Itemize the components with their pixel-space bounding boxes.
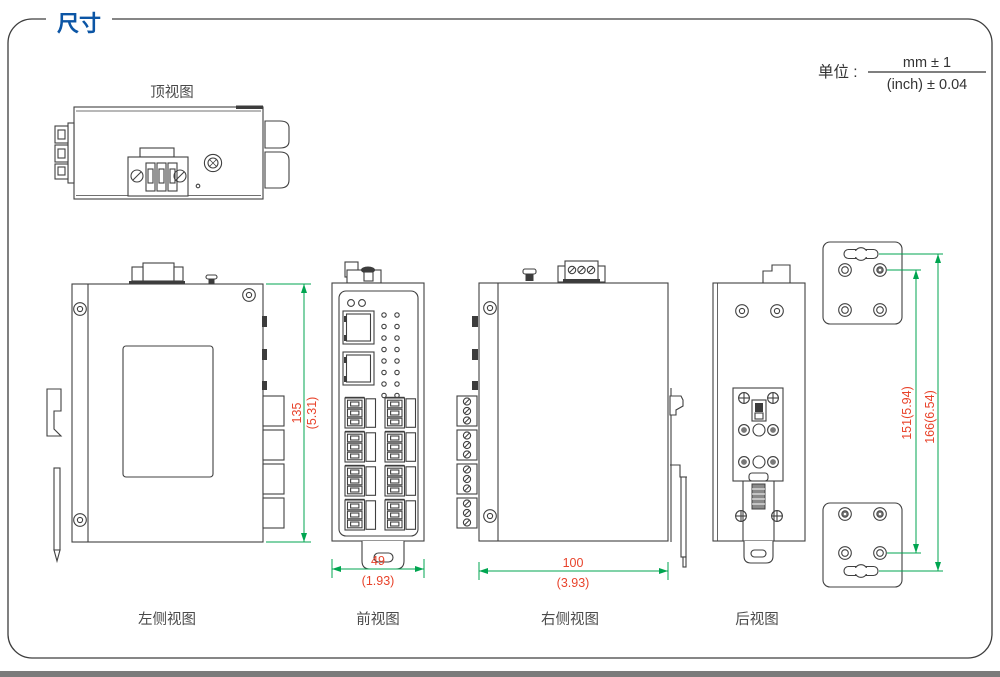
dim-mount-hole-span: 151(5.94) <box>900 386 914 440</box>
top-view-right-connectors <box>265 121 289 188</box>
dim-side-width-mm: 100 <box>563 556 584 570</box>
dim-front-width-inch: (1.93) <box>362 574 395 588</box>
dim-mount-slot-span: 166(6.54) <box>923 390 937 444</box>
left-view-port-blocks <box>263 396 284 528</box>
din-spring <box>752 484 765 509</box>
top-view-left-connectors <box>55 123 74 183</box>
wall-plate-bottom <box>823 503 902 587</box>
unit-numerator: mm ± 1 <box>903 55 951 71</box>
right-view-terminal-blocks <box>457 396 477 528</box>
top-screw <box>206 275 217 279</box>
right-side-view-label: 右侧视图 <box>541 611 599 628</box>
left-top-connector <box>129 263 217 284</box>
unit-note: 单位 : mm ± 1 (inch) ± 0.04 <box>818 55 986 93</box>
din-mount-bracket <box>733 388 783 481</box>
front-view-label: 前视图 <box>356 611 400 628</box>
page-title: 尺寸 <box>57 11 101 36</box>
front-top-clip <box>345 262 381 283</box>
dim-height-inch: (5.31) <box>305 397 319 430</box>
din-rail-clip-edge <box>47 389 61 561</box>
rear-top-connector <box>763 265 790 283</box>
dimension-drawing-page: 尺寸 单位 : mm ± 1 (inch) ± 0.04 顶视图 <box>0 0 1000 677</box>
rear-view-label: 后视图 <box>735 611 779 628</box>
top-view-label: 顶视图 <box>150 84 194 101</box>
left-side-view: 左侧视图 <box>47 263 319 628</box>
page-bottom-bar <box>0 671 1000 677</box>
wall-mount-plates: 151(5.94) 166(6.54) <box>823 242 943 587</box>
side-width-dimension: 100 (3.93) <box>479 556 668 590</box>
dim-side-width-inch: (3.93) <box>557 576 590 590</box>
left-side-view-label: 左侧视图 <box>138 611 196 628</box>
dim-front-width-mm: 49 <box>371 554 385 568</box>
bracket-screw <box>772 511 783 522</box>
top-edge-mark <box>236 106 263 110</box>
reset-button <box>523 269 536 274</box>
bracket-screw <box>736 511 747 522</box>
dim-height-mm: 135 <box>290 403 304 424</box>
front-width-dimension: 49 (1.93) <box>332 554 424 588</box>
din-rail-clip <box>670 388 687 567</box>
dimension-drawing: 尺寸 单位 : mm ± 1 (inch) ± 0.04 顶视图 <box>0 0 1000 677</box>
unit-denominator: (inch) ± 0.04 <box>887 77 968 93</box>
front-view: 前视图 <box>332 262 424 628</box>
rear-view: 后视图 <box>713 265 805 628</box>
rear-mounting-tab <box>744 541 773 563</box>
right-top-terminal <box>523 261 605 283</box>
top-view: 顶视图 <box>55 84 289 199</box>
unit-label: 单位 : <box>818 63 858 81</box>
right-side-view: 右侧视图 <box>457 261 687 628</box>
